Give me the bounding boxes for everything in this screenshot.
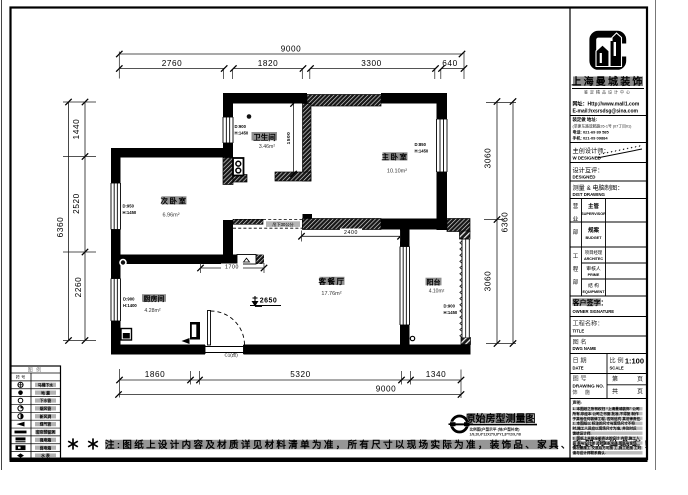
svg-text:程: 程 (573, 265, 579, 273)
svg-text:原始房型测量图: 原始房型测量图 (466, 412, 536, 425)
svg-text:1860: 1860 (145, 370, 166, 379)
svg-text:DIST DRAWING: DIST DRAWING (573, 192, 606, 197)
svg-text:业: 业 (573, 215, 579, 223)
svg-text:第: 第 (612, 375, 618, 383)
svg-text:1500: 1500 (286, 132, 292, 145)
svg-text:1. 本图纸之所有权归 “上海曼城装饰” 公司: 1. 本图纸之所有权归 “上海曼城装饰” 公司 (573, 406, 640, 411)
svg-text:D:950: D:950 (123, 204, 135, 209)
svg-text:比 例: 比 例 (610, 357, 624, 365)
svg-text:W DESIGNED: W DESIGNED (573, 156, 601, 161)
svg-text:PRIME: PRIME (588, 273, 600, 277)
svg-text:情况需施工 交底后方可施 工,施工定施 工时: 情况需施工 交底后方可施 工,施工定施 工时 (573, 445, 642, 450)
svg-text:H:1450: H:1450 (444, 310, 458, 315)
svg-text:主卧室: 主卧室 (382, 152, 409, 162)
svg-text:4.10m²: 4.10m² (429, 289, 445, 295)
svg-text:上海曼城装饰: 上海曼城装饰 (571, 75, 644, 88)
svg-text:电话: 021-69 89 585: 电话: 021-69 89 585 (573, 129, 610, 135)
svg-text:1700: 1700 (225, 265, 239, 271)
svg-text:弱电箱: 弱电箱 (40, 445, 52, 450)
svg-text:6.96m²: 6.96m² (162, 213, 179, 219)
svg-text:请与设计师联系确认.: 请与设计师联系确认. (573, 450, 606, 455)
svg-text:9000: 9000 (281, 45, 302, 54)
svg-text:1440: 1440 (72, 119, 81, 140)
svg-text:(莘建东路放鹤路26-1号 (07丁目01): (莘建东路放鹤路26-1号 (07丁目01) (573, 124, 633, 129)
svg-text:2650: 2650 (260, 298, 278, 305)
svg-text:3300: 3300 (361, 59, 382, 68)
svg-text:SCALE: SCALE (610, 366, 624, 371)
svg-text:9000: 9000 (376, 385, 397, 394)
svg-text:1:100: 1:100 (625, 357, 644, 366)
svg-text:C1(改): C1(改) (225, 352, 239, 359)
svg-text:装定做 地址:: 装定做 地址: (573, 116, 598, 123)
svg-text:下水管: 下水管 (40, 398, 52, 403)
svg-text:OWNER SIGNATURE: OWNER SIGNATURE (573, 309, 615, 314)
svg-text:BUDGET: BUDGET (585, 236, 602, 240)
svg-text:DATE: DATE (573, 366, 584, 371)
svg-text:E-mail:hxsrsdsg@sina.com: E-mail:hxsrsdsg@sina.com (573, 109, 639, 115)
svg-text:部: 部 (573, 278, 579, 286)
svg-text:项目经理: 项目经理 (585, 249, 603, 256)
svg-text:阳台: 阳台 (427, 278, 441, 287)
svg-text:地 漏: 地 漏 (41, 390, 50, 395)
svg-text:页: 页 (637, 389, 643, 396)
svg-text:部: 部 (573, 228, 579, 236)
svg-text:符 号: 符 号 (16, 374, 26, 381)
svg-text:2260: 2260 (74, 277, 83, 298)
svg-text:TITLE: TITLE (573, 329, 585, 334)
svg-text:强电箱: 强电箱 (40, 437, 52, 442)
svg-text:审核人: 审核人 (586, 265, 601, 272)
svg-text:图 号: 图 号 (573, 376, 587, 383)
svg-text:图 例: 图 例 (28, 367, 42, 374)
svg-text:H:1450: H:1450 (415, 149, 429, 154)
svg-text:DRAWING NO.: DRAWING NO. (573, 384, 605, 389)
svg-text:日 期: 日 期 (573, 357, 587, 365)
svg-text:次卧室: 次卧室 (161, 196, 188, 206)
svg-text:厨房间: 厨房间 (144, 294, 165, 303)
svg-text:主管: 主管 (588, 202, 600, 210)
svg-text:比例图(户型示平 (地/户型补定): 比例图(户型示平 (地/户型补定) (470, 427, 521, 432)
svg-text:卫生间: 卫生间 (253, 132, 276, 142)
svg-text:D:900: D:900 (123, 297, 135, 302)
svg-text:鉴定精品设计中心: 鉴定精品设计中心 (584, 89, 632, 95)
svg-text:3060: 3060 (484, 148, 493, 169)
svg-text:所有,非经本 公司之书面 批准,不得复 制作: 所有,非经本 公司之书面 批准,不得复 制作 (572, 411, 639, 416)
svg-text:D:900: D:900 (444, 304, 456, 309)
svg-text:H:1400: H:1400 (123, 303, 137, 308)
svg-text:5320: 5320 (290, 370, 311, 379)
svg-text:工: 工 (573, 253, 579, 260)
svg-text:3060: 3060 (484, 271, 493, 292)
svg-text:工程名称：: 工程名称： (573, 320, 604, 328)
svg-text:D:850: D:850 (415, 142, 427, 147)
svg-text:页: 页 (637, 376, 643, 383)
svg-text:新风洞: 新风洞 (40, 414, 52, 419)
svg-text:DWG NAME: DWG NAME (573, 346, 597, 351)
svg-text:1820: 1820 (258, 59, 279, 68)
svg-text:图 名: 图 名 (573, 338, 587, 346)
svg-text:3. 图纸上未能全部表达的设计 内容,施工人: 3. 图纸上未能全部表达的设计 内容,施工人 (573, 435, 640, 440)
svg-text:网址：Http;//www.mall1.com: 网址：Http;//www.mall1.com (573, 101, 640, 108)
svg-text:2400: 2400 (344, 230, 358, 236)
svg-text:H:1450: H:1450 (235, 131, 249, 136)
svg-text:ARCHITEC: ARCHITEC (584, 257, 603, 261)
svg-text:规案: 规案 (588, 226, 600, 234)
svg-text:结 构: 结 构 (588, 282, 599, 289)
svg-text:SUPERVISOR: SUPERVISOR (581, 212, 606, 216)
svg-text:2520: 2520 (72, 193, 81, 214)
svg-text:客餐厅: 客餐厅 (318, 276, 346, 286)
svg-text:主创设计师：: 主创设计师： (573, 147, 610, 155)
svg-text:时,施工人员应以现场尺寸为准, 并及时反: 时,施工人员应以现场尺寸为准, 并及时反 (573, 426, 637, 431)
svg-text:测量 & 电脑制图：: 测量 & 电脑制图： (573, 184, 624, 192)
svg-text:于其他任何装修工程, 否则追究 其法律责任.: 于其他任何装修工程, 否则追究 其法律责任. (573, 416, 642, 421)
svg-text:2. 本图纸以 标注的尺寸与现场尺寸不符: 2. 本图纸以 标注的尺寸与现场尺寸不符 (573, 421, 636, 426)
svg-text:D:900: D:900 (235, 124, 247, 129)
svg-text:2760: 2760 (162, 59, 183, 68)
svg-text:3.46m²: 3.46m² (259, 144, 275, 150)
svg-text:声明:: 声明: (572, 399, 582, 405)
svg-text:EQUIPMENT: EQUIPMENT (583, 290, 606, 294)
svg-text:水 表: 水 表 (40, 453, 50, 458)
svg-text:6360: 6360 (56, 217, 65, 238)
svg-text:设计互评：: 设计互评： (573, 167, 604, 175)
svg-text:窗帘预留洞: 窗帘预留洞 (36, 430, 55, 435)
svg-text:6360: 6360 (501, 212, 510, 233)
svg-text:共: 共 (612, 388, 618, 396)
svg-text:客户签字：: 客户签字： (572, 298, 608, 307)
svg-text:4.28m²: 4.28m² (144, 308, 160, 314)
svg-text:1340: 1340 (426, 370, 447, 379)
svg-text:H:1450: H:1450 (123, 210, 137, 215)
svg-text:煤气管: 煤气管 (40, 422, 52, 427)
svg-text:640: 640 (442, 59, 457, 68)
svg-text:烟风管: 烟风管 (40, 406, 52, 411)
svg-text:10.10m²: 10.10m² (387, 169, 407, 175)
svg-text:饰 施: 饰 施 (573, 389, 593, 396)
svg-text:吊下30公分: 吊下30公分 (272, 221, 294, 228)
svg-text:1/9,20,6*12X2*9,8*Y1,8*Y2/9,7/: 1/9,20,6*12X2*9,8*Y1,8*Y2/9,7/8 (470, 432, 521, 436)
svg-text:17.76m²: 17.76m² (321, 291, 341, 297)
svg-text:馈给设计师.: 馈给设计师. (573, 431, 592, 436)
svg-text:马桶下水: 马桶下水 (38, 382, 53, 387)
svg-text:手机: 021-09 09884: 手机: 021-09 09884 (573, 135, 609, 141)
svg-text:营: 营 (573, 202, 579, 210)
svg-text:DESIGNED: DESIGNED (573, 175, 596, 180)
svg-text:员 参与设计师 及时联系沟通,图纸与现场: 员 参与设计师 及时联系沟通,图纸与现场 (573, 440, 637, 445)
